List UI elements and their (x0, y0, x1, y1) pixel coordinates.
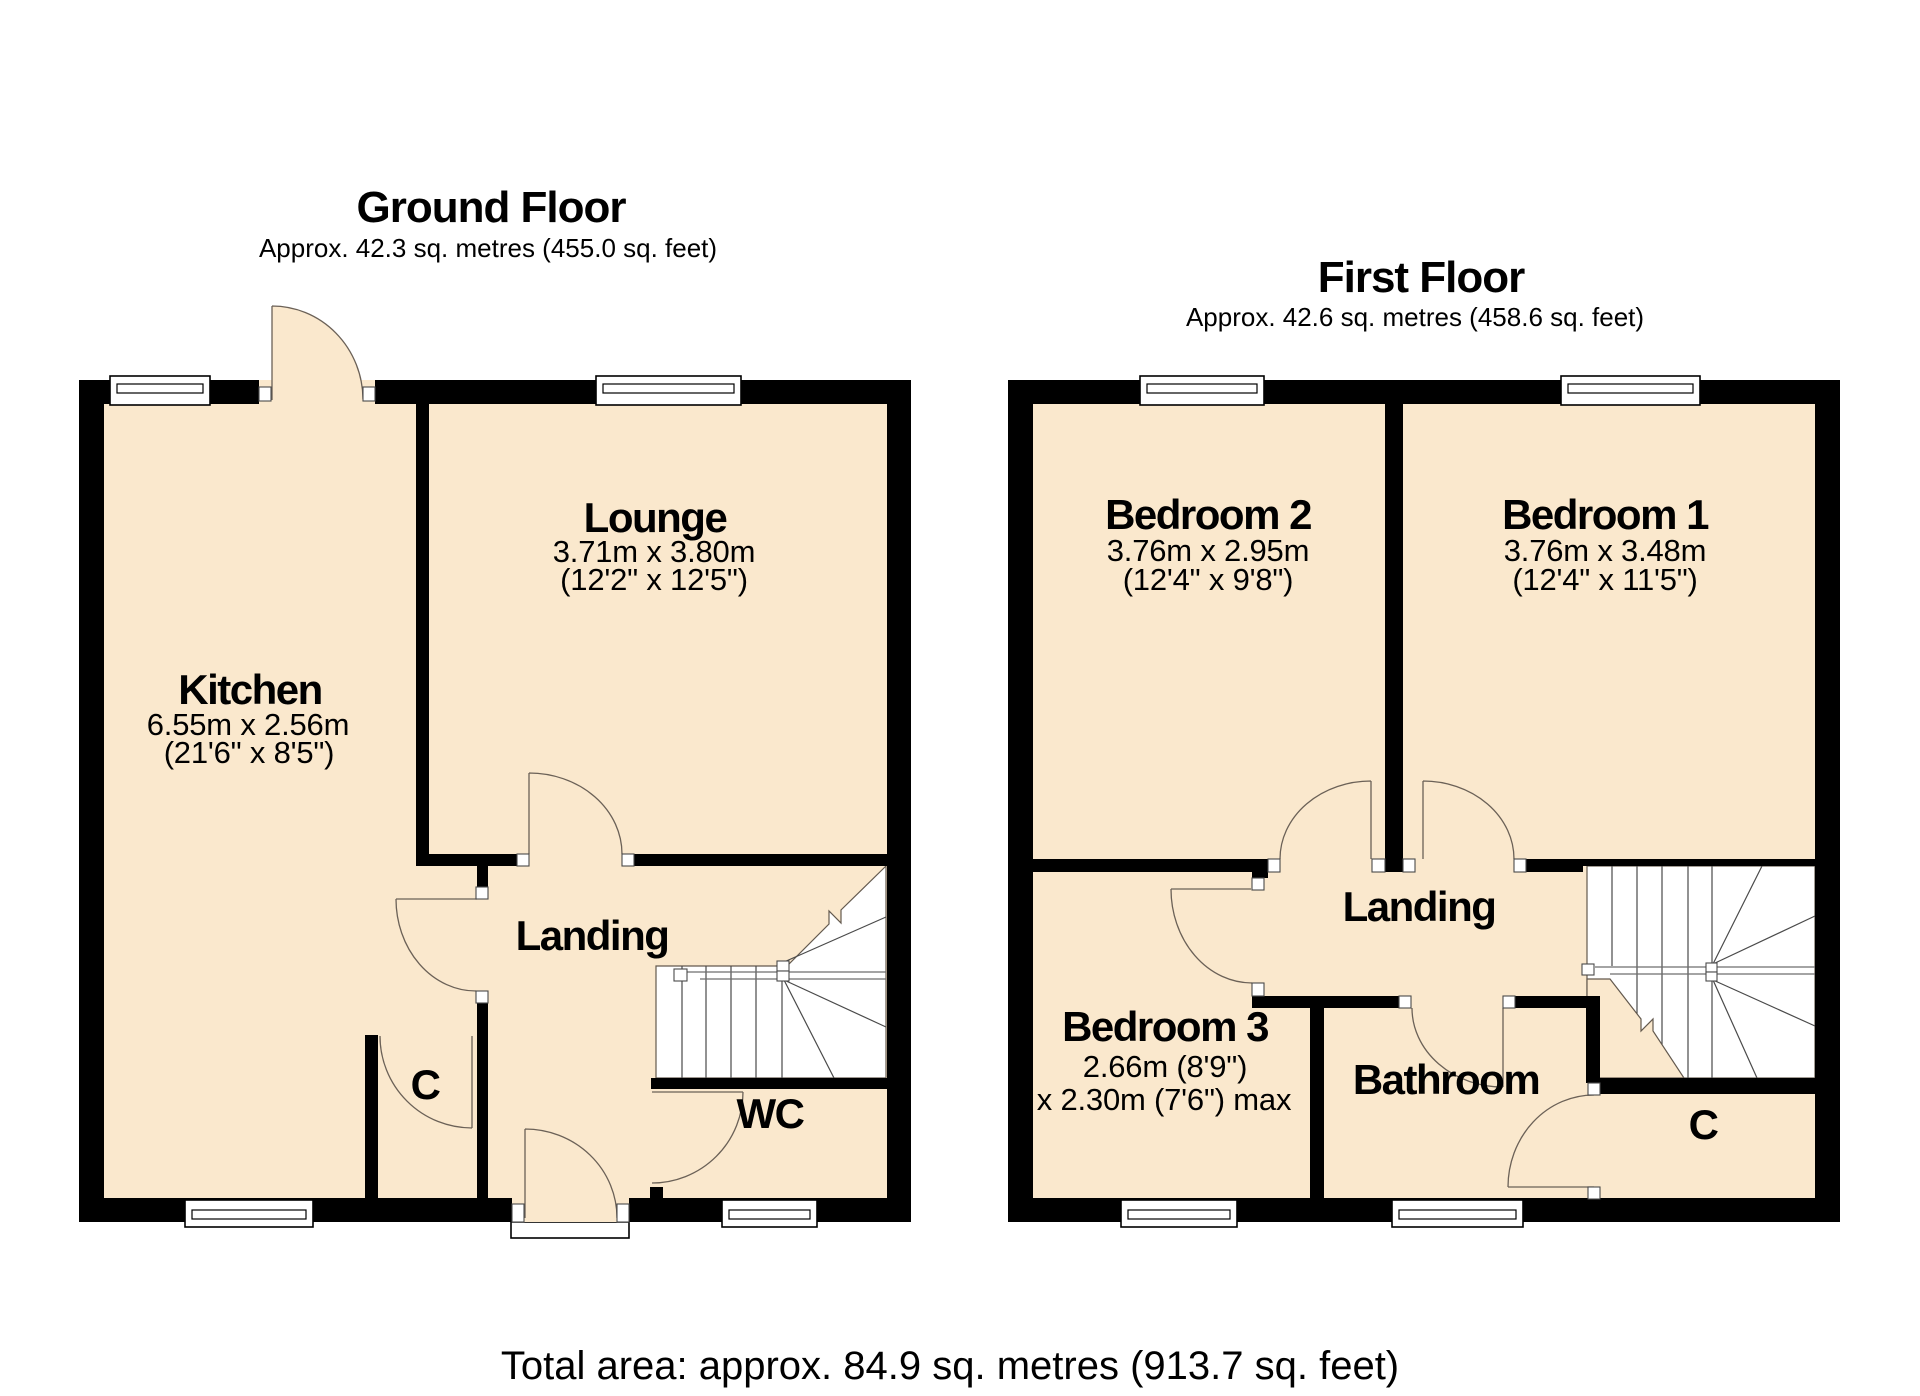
svg-text:Bedroom 2: Bedroom 2 (1105, 491, 1311, 538)
svg-text:Approx. 42.3 sq. metres (455.0: Approx. 42.3 sq. metres (455.0 sq. feet) (259, 233, 717, 263)
svg-text:(21'6" x 8'5"): (21'6" x 8'5") (164, 735, 335, 770)
svg-text:(12'4" x 9'8"): (12'4" x 9'8") (1123, 562, 1294, 597)
svg-text:Landing: Landing (1343, 883, 1496, 930)
svg-text:(12'2" x 12'5"): (12'2" x 12'5") (560, 562, 748, 597)
svg-text:Bedroom 1: Bedroom 1 (1502, 491, 1709, 538)
svg-text:x 2.30m (7'6") max: x 2.30m (7'6") max (1037, 1082, 1292, 1117)
svg-text:C: C (1689, 1101, 1719, 1148)
svg-text:WC: WC (737, 1090, 805, 1137)
svg-text:Landing: Landing (516, 912, 669, 959)
svg-text:Total area: approx. 84.9 sq. m: Total area: approx. 84.9 sq. metres (913… (501, 1344, 1399, 1388)
svg-text:Kitchen: Kitchen (178, 666, 322, 713)
svg-text:Bedroom 3: Bedroom 3 (1062, 1003, 1268, 1050)
svg-text:C: C (411, 1061, 441, 1108)
svg-text:2.66m (8'9"): 2.66m (8'9") (1083, 1049, 1247, 1084)
svg-text:Ground Floor: Ground Floor (356, 183, 626, 232)
svg-text:Approx. 42.6 sq. metres (458.6: Approx. 42.6 sq. metres (458.6 sq. feet) (1186, 302, 1644, 332)
svg-text:First Floor: First Floor (1318, 253, 1525, 302)
svg-text:Bathroom: Bathroom (1353, 1056, 1539, 1103)
svg-text:(12'4" x 11'5"): (12'4" x 11'5") (1512, 562, 1697, 597)
